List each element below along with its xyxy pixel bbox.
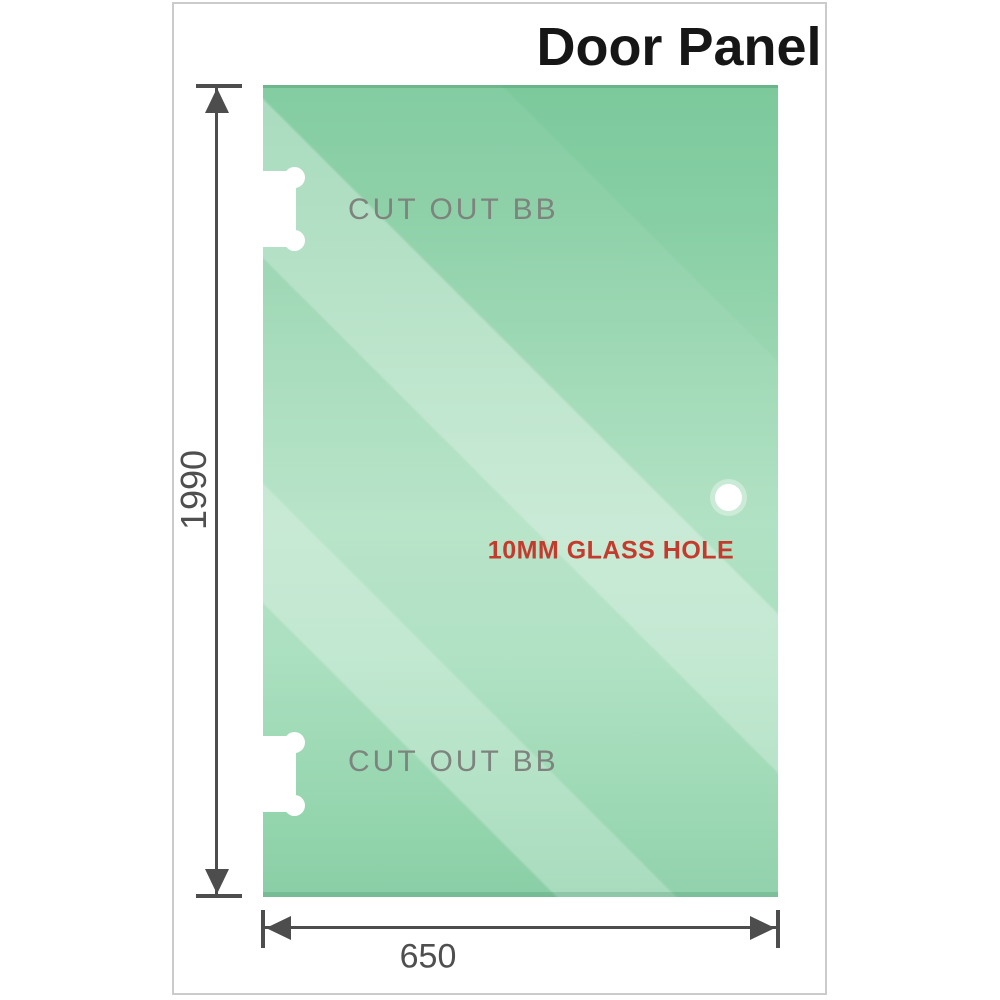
hinge-cutout-top-icon	[263, 171, 296, 247]
height-dimension-cap-bottom	[196, 894, 242, 898]
width-dimension-cap-left	[261, 910, 265, 948]
hinge-cutout-bottom-icon	[263, 736, 296, 812]
arrow-right-icon	[750, 916, 775, 940]
glass-hole-icon	[715, 484, 742, 511]
width-dimension-cap-right	[776, 910, 780, 948]
door-panel-diagram: Door Panel CUT OUT BB CUT OUT BB 10MM GL…	[0, 0, 1000, 1000]
height-dimension-line	[215, 85, 218, 897]
arrow-down-icon	[205, 869, 229, 894]
arrow-left-icon	[266, 916, 291, 940]
arrow-up-icon	[205, 88, 229, 113]
page-title: Door Panel	[536, 16, 821, 78]
cutout-bottom-label: CUT OUT BB	[348, 745, 559, 779]
glass-hole-label: 10MM GLASS HOLE	[488, 537, 734, 566]
height-value: 1990	[173, 450, 215, 530]
width-value: 650	[400, 938, 457, 977]
cutout-top-label: CUT OUT BB	[348, 193, 559, 227]
width-dimension-line	[263, 926, 778, 929]
glass-panel: CUT OUT BB CUT OUT BB 10MM GLASS HOLE	[263, 85, 778, 897]
